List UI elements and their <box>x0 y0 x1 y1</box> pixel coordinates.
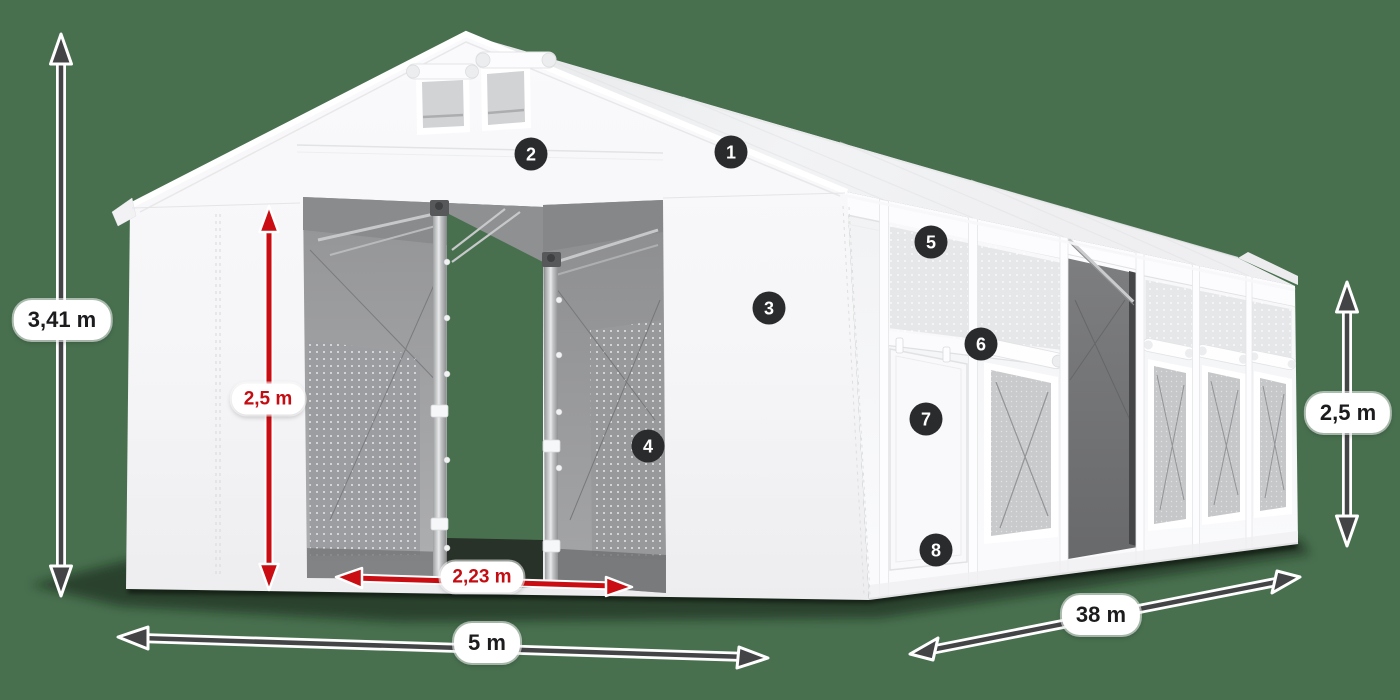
gable-width-arrow <box>118 627 768 668</box>
tent-illustration-canvas <box>0 0 1400 700</box>
feature-marker-4: 4 <box>632 430 665 463</box>
tent-side-wall <box>847 192 1298 599</box>
dimension-label-length: 38 m <box>1062 595 1140 635</box>
feature-marker-7: 7 <box>910 403 943 436</box>
dimension-label-side-wall-height: 2,5 m <box>1306 393 1390 433</box>
front-doorway-right <box>543 200 666 593</box>
dimension-label-front-wall-height: 2,5 m <box>232 384 305 415</box>
feature-marker-3: 3 <box>753 292 786 325</box>
feature-marker-8: 8 <box>920 534 953 567</box>
dimension-label-door-width: 2,23 m <box>440 562 523 593</box>
front-doorway-centre-gap <box>447 203 543 588</box>
feature-marker-1: 1 <box>715 136 748 169</box>
tent-product-image: 3,41 m 2,5 m 2,23 m 5 m 38 m 2,5 m 1 2 3… <box>0 0 1400 700</box>
dimension-label-gable-width: 5 m <box>454 623 520 663</box>
front-doorway-left <box>303 197 447 579</box>
feature-marker-6: 6 <box>965 328 998 361</box>
feature-marker-2: 2 <box>515 138 548 171</box>
feature-marker-5: 5 <box>915 226 948 259</box>
dimension-label-total-height: 3,41 m <box>14 300 111 340</box>
